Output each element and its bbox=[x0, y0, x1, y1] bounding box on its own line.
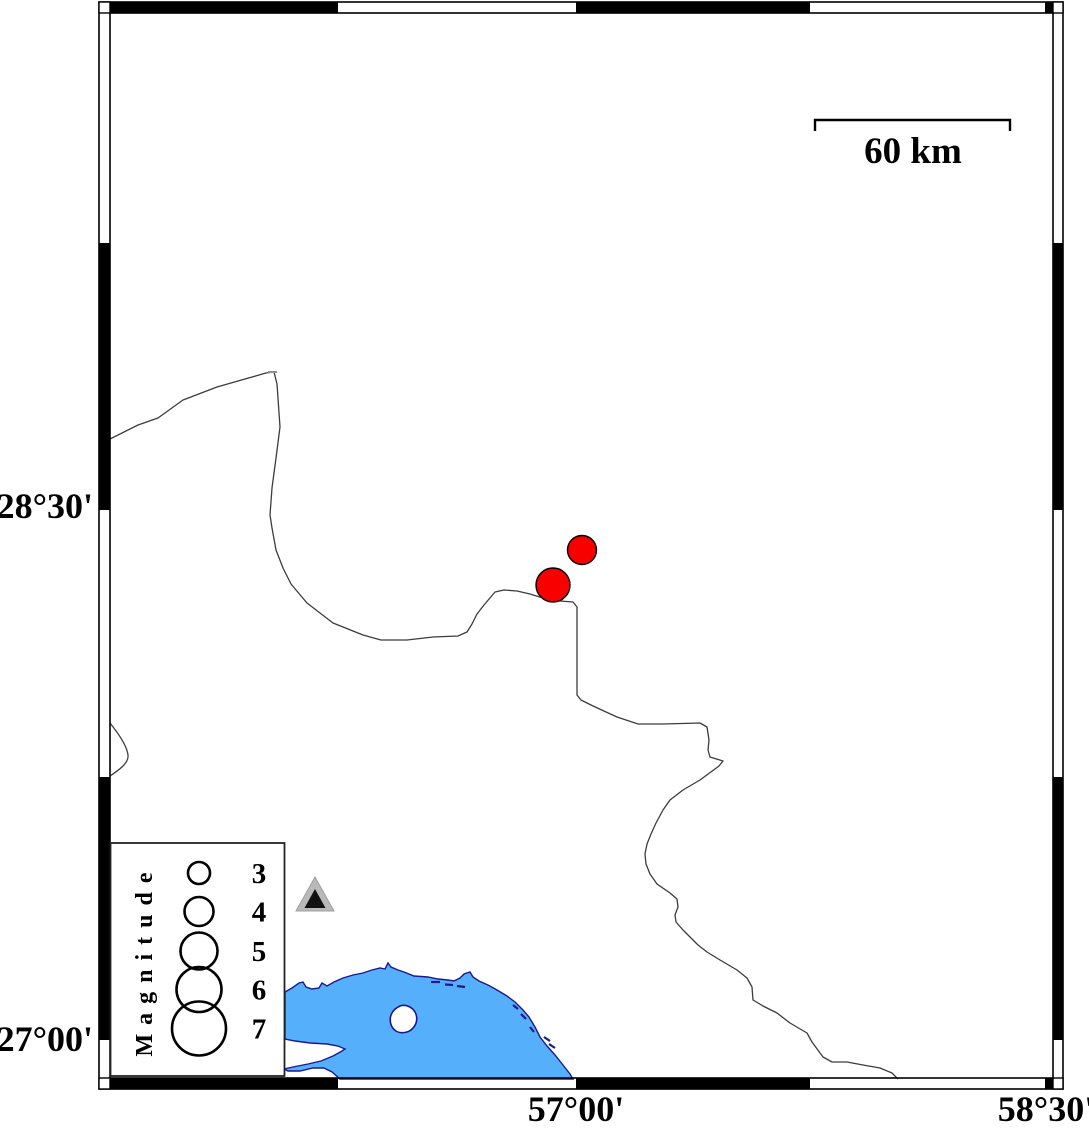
magnitude-legend: Magnitude 3 4 5 6 7 bbox=[111, 843, 285, 1076]
legend-label-5: 5 bbox=[252, 936, 267, 968]
legend-label-7: 7 bbox=[252, 1014, 267, 1046]
lat-label-28-30: 28°30' bbox=[0, 486, 93, 526]
lat-label-27-00: 27°00' bbox=[0, 1019, 93, 1059]
legend-numbers: 3 4 5 6 7 bbox=[252, 858, 267, 1046]
legend-label-3: 3 bbox=[252, 858, 267, 890]
island bbox=[390, 1005, 417, 1032]
earthquake-marker-2 bbox=[568, 536, 597, 565]
legend-title: Magnitude bbox=[132, 863, 158, 1056]
earthquake-marker-1 bbox=[536, 568, 570, 602]
lon-label-57-00: 57°00' bbox=[528, 1089, 624, 1128]
lon-label-58-30: 58°30' bbox=[998, 1089, 1089, 1128]
map-canvas: 60 km 28°30' 27°00' 57°00' 58°30' Magnit… bbox=[0, 0, 1089, 1128]
seismicity-map-figure: 60 km 28°30' 27°00' 57°00' 58°30' Magnit… bbox=[0, 0, 1089, 1128]
scale-bar-label: 60 km bbox=[864, 131, 962, 172]
legend-label-6: 6 bbox=[252, 975, 267, 1007]
legend-label-4: 4 bbox=[252, 897, 267, 929]
